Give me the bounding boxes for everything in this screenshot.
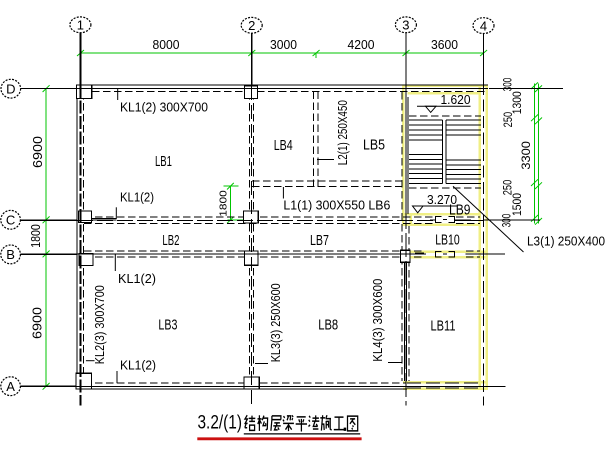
svg-text:2: 2: [248, 18, 255, 33]
svg-text:LB5: LB5: [363, 138, 385, 154]
svg-text:LB9: LB9: [449, 203, 471, 219]
svg-text:3300: 3300: [521, 141, 533, 170]
svg-text:D: D: [6, 81, 15, 96]
svg-text:LB4: LB4: [274, 138, 293, 154]
svg-text:LB2: LB2: [162, 233, 179, 249]
svg-text:B: B: [6, 247, 15, 262]
svg-text:KL1(2) 300X700: KL1(2) 300X700: [120, 100, 208, 115]
svg-text:6900: 6900: [31, 307, 45, 339]
svg-text:3600: 3600: [431, 38, 458, 52]
svg-text:LB8: LB8: [318, 318, 338, 334]
svg-text:1300: 1300: [512, 91, 524, 114]
svg-text:LB7: LB7: [310, 233, 329, 249]
svg-text:1800: 1800: [218, 190, 230, 217]
svg-text:C: C: [6, 213, 15, 228]
svg-text:L2(1) 250X450: L2(1) 250X450: [335, 100, 350, 165]
svg-text:LB3: LB3: [158, 318, 177, 334]
svg-text:1: 1: [77, 18, 84, 33]
svg-text:LB11: LB11: [431, 319, 456, 335]
svg-text:1800: 1800: [29, 224, 43, 248]
svg-text:L1(1) 300X550 LB6: L1(1) 300X550 LB6: [283, 198, 390, 213]
svg-text:KL3(3) 250X600: KL3(3) 250X600: [268, 283, 283, 362]
svg-text:250: 250: [503, 180, 515, 196]
svg-text:3.2/(1): 3.2/(1): [198, 413, 243, 434]
svg-text:3: 3: [402, 18, 409, 33]
svg-text:KL2(3) 300X700: KL2(3) 300X700: [92, 285, 107, 364]
svg-text:A: A: [6, 379, 15, 394]
svg-text:4: 4: [480, 18, 487, 33]
svg-text:8000: 8000: [153, 38, 180, 52]
svg-text:4200: 4200: [348, 38, 375, 52]
svg-text:KL1(2): KL1(2): [118, 271, 156, 286]
svg-text:250: 250: [503, 112, 515, 128]
svg-text:300: 300: [503, 78, 515, 92]
svg-text:300: 300: [502, 214, 514, 228]
svg-text:KL4(3) 300X600: KL4(3) 300X600: [370, 279, 385, 362]
svg-text:KL1(2): KL1(2): [120, 190, 154, 205]
svg-text:1.620: 1.620: [441, 93, 471, 107]
svg-text:KL1(2): KL1(2): [120, 358, 156, 373]
svg-text:1500: 1500: [512, 193, 524, 216]
svg-text:LB10: LB10: [435, 233, 460, 249]
svg-text:LB1: LB1: [155, 154, 172, 170]
svg-text:6900: 6900: [31, 136, 45, 168]
svg-text:L3(1) 250X400: L3(1) 250X400: [527, 234, 605, 249]
svg-text:3000: 3000: [270, 38, 297, 52]
